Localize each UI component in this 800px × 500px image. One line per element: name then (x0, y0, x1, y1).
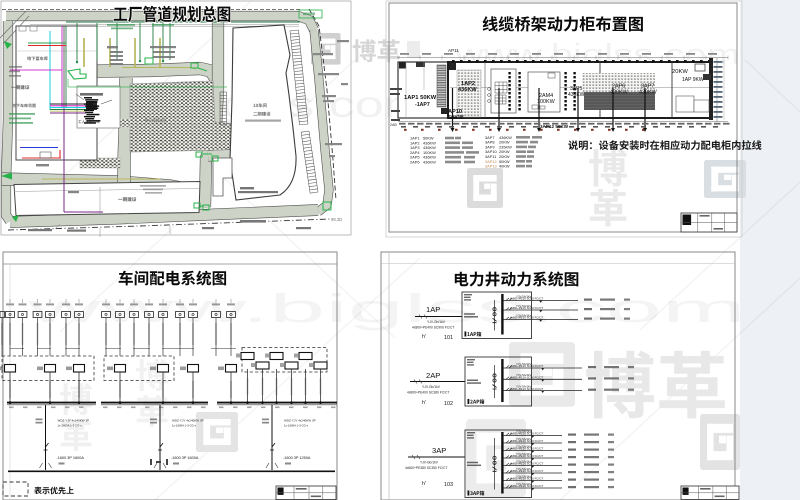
svg-text:3AP12 50KW: 3AP12 50KW (540, 124, 569, 129)
svg-text:YJV-Gb/1kV: YJV-Gb/1kV (427, 320, 446, 324)
svg-text:WDZ-YJY 4x240KW 3P: WDZ-YJY 4x240KW 3P (58, 419, 90, 423)
svg-text:YJV-Gb/1kV: YJV-Gb/1kV (420, 461, 439, 465)
svg-text:4xBD+PE16 SC80 FC/CT: 4xBD+PE16 SC80 FC/CT (510, 364, 543, 368)
svg-text:WDZ-YJY 4x240KW 3P: WDZ-YJY 4x240KW 3P (172, 419, 204, 423)
svg-text:4x800+PE400 SC380 FC/CT: 4x800+PE400 SC380 FC/CT (407, 391, 449, 395)
svg-text:100KW: 100KW (537, 99, 556, 105)
svg-text:YJV-Gb/1kV: YJV-Gb/1kV (422, 385, 441, 389)
svg-text:2AP: 2AP (426, 371, 440, 380)
svg-text:1x-1600A 1-3-CG-x: 1x-1600A 1-3-CG-x (58, 424, 83, 428)
svg-text:436KW: 436KW (568, 92, 585, 98)
svg-text:-1600 3P 1600A: -1600 3P 1600A (171, 456, 199, 460)
svg-text:4x600+PE380 SC350 FC/CT: 4x600+PE380 SC350 FC/CT (405, 466, 447, 470)
svg-text:AP11: AP11 (448, 48, 459, 53)
svg-text:101: 101 (444, 335, 453, 341)
svg-text:4xBD+PE16 SC80 FC/CT: 4xBD+PE16 SC80 FC/CT (510, 447, 543, 451)
svg-text:4xBD+PE16 SC80 FC/CT: 4xBD+PE16 SC80 FC/CT (510, 462, 543, 466)
svg-text:h': h' (422, 481, 426, 487)
svg-text:1AP1 50KW: 1AP1 50KW (404, 95, 437, 101)
svg-text:4xBD+PE16 SC80 FC/CT: 4xBD+PE16 SC80 FC/CT (510, 316, 543, 320)
svg-text:1AP: 1AP (426, 305, 440, 314)
svg-text:4xBD+PE16 SC80 FC/CT: 4xBD+PE16 SC80 FC/CT (510, 469, 543, 473)
svg-text:3AP13: 3AP13 (485, 164, 497, 169)
svg-text:4xBD+PE16 SC80 FC/CT: 4xBD+PE16 SC80 FC/CT (510, 387, 543, 391)
svg-text:WDZ-YJY 4x240KW 3P: WDZ-YJY 4x240KW 3P (284, 419, 316, 423)
svg-text:1x-1600A 1-3-CG-x: 1x-1600A 1-3-CG-x (284, 424, 309, 428)
svg-text:4x800+PE400 SC900 FC/CT: 4x800+PE400 SC900 FC/CT (412, 326, 454, 330)
svg-text:102: 102 (444, 401, 453, 407)
svg-text:-1AP7: -1AP7 (415, 102, 430, 108)
svg-text:4xBD+PE16 SC80 FC/CT: 4xBD+PE16 SC80 FC/CT (510, 376, 543, 380)
svg-text:4xBD+PE16 SC80 FC/CT: 4xBD+PE16 SC80 FC/CT (510, 306, 543, 310)
svg-text:436KW: 436KW (423, 160, 436, 165)
svg-text:3AP: 3AP (432, 446, 446, 455)
svg-text:436KW: 436KW (639, 90, 658, 96)
svg-text:103: 103 (444, 482, 453, 488)
svg-text:-1600 3P 1600A: -1600 3P 1600A (57, 456, 85, 460)
svg-text:50KW: 50KW (448, 115, 464, 121)
svg-text:4xBD+PE16 SC80 FC/CT: 4xBD+PE16 SC80 FC/CT (510, 477, 543, 481)
svg-text:436KW: 436KW (458, 87, 477, 93)
svg-text:1AP 9KW: 1AP 9KW (682, 77, 704, 83)
svg-text:4xBD+PE16 SC80 FC/CT: 4xBD+PE16 SC80 FC/CT (510, 432, 543, 436)
svg-text:4xBD+PE16 SC80 FC/CT: 4xBD+PE16 SC80 FC/CT (510, 454, 543, 458)
svg-text:1x-1600A 1-3-CG-x: 1x-1600A 1-3-CG-x (172, 424, 197, 428)
svg-text:-1600 3P 1250A: -1600 3P 1250A (283, 456, 311, 460)
svg-text:4xBD+PE16 SC80 FC/CT: 4xBD+PE16 SC80 FC/CT (510, 484, 543, 488)
svg-text:20KW: 20KW (672, 69, 688, 75)
svg-text:h': h' (422, 400, 426, 406)
svg-text:98.3D: 98.3D (331, 217, 342, 222)
svg-text:4xBD+PE16 SC80 FC/CT: 4xBD+PE16 SC80 FC/CT (510, 297, 543, 301)
svg-text:4xBD+PE16 SC80 FC/CT: 4xBD+PE16 SC80 FC/CT (510, 439, 543, 443)
svg-text:2AB: 2AB (390, 123, 397, 127)
svg-text:2AP6: 2AP6 (410, 160, 420, 165)
svg-text:40KW: 40KW (499, 164, 510, 169)
svg-text:h': h' (422, 334, 426, 340)
